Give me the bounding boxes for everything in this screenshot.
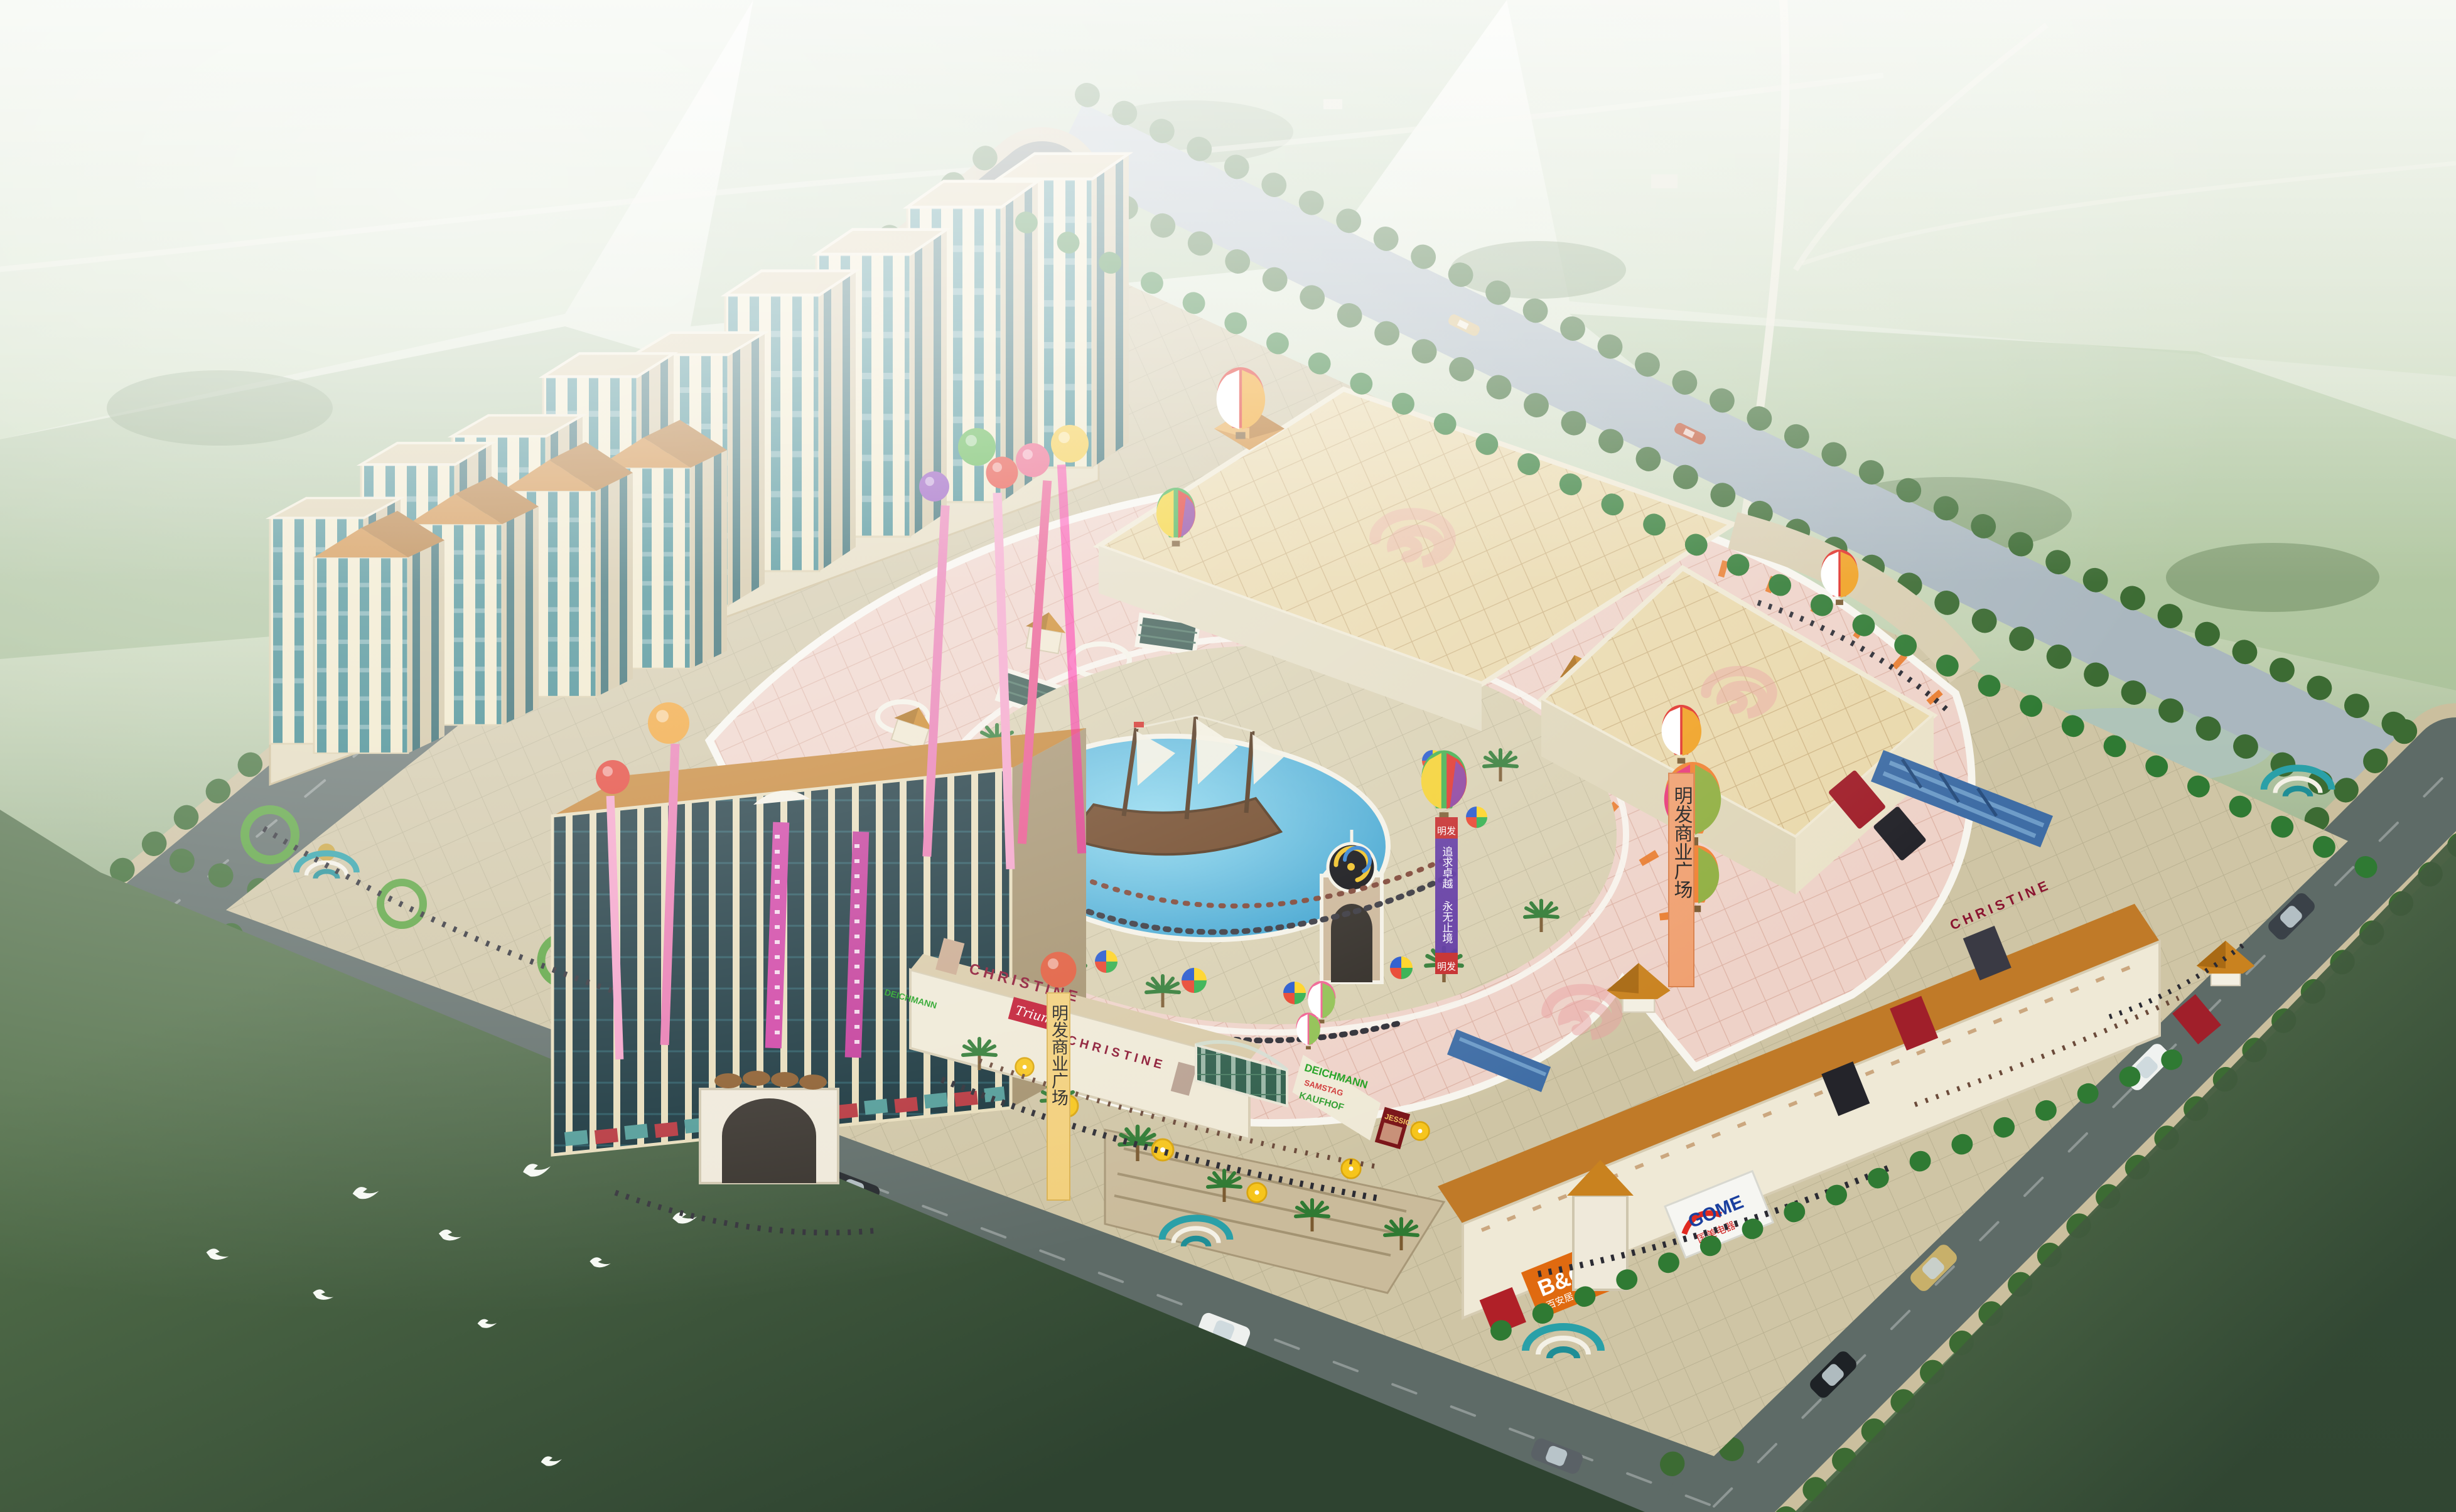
atmospheric-haze — [0, 0, 2456, 1512]
aerial-rendering-scene: CHRISTINE Triumph CHRISTINE DEICHMANN SA… — [0, 0, 2456, 1512]
